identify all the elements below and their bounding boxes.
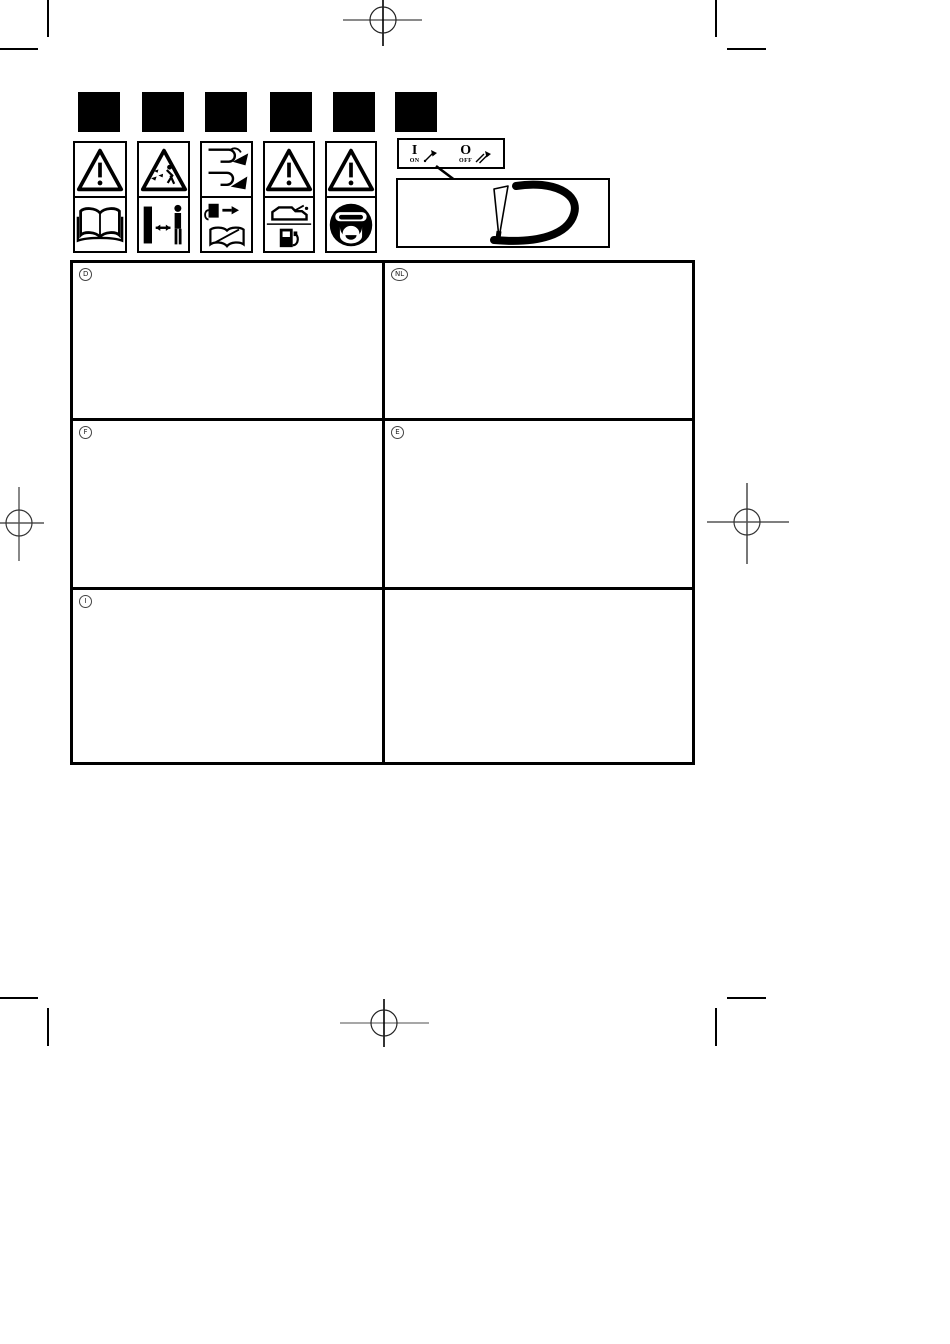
read-manual-book-icon [75, 196, 125, 251]
language-code-badge: I [79, 595, 92, 608]
warning-triangle-icon [265, 143, 313, 196]
crop-mark [0, 997, 38, 999]
handle-figure-box [396, 178, 610, 248]
keep-bystanders-away-icon [139, 196, 188, 251]
language-code-badge: F [79, 426, 92, 439]
loop-handle-with-throttle-lever [398, 180, 608, 246]
figure-number-square [205, 92, 247, 132]
warning-triangle-icon [327, 143, 375, 196]
crop-mark [47, 1008, 49, 1046]
crop-mark [715, 1008, 717, 1046]
registration-crosshair-icon [338, 0, 428, 50]
registration-crosshair-icon [703, 478, 795, 570]
language-code-badge: E [391, 426, 404, 439]
pictogram-box-5 [325, 141, 377, 253]
oil-and-fuel-icon [265, 196, 313, 251]
table-cell-dutch: NL [385, 263, 692, 421]
figure-number-square [270, 92, 312, 132]
thrown-objects-warning-icon [139, 143, 188, 196]
figure-number-square [78, 92, 120, 132]
figure-number-square [142, 92, 184, 132]
pictogram-box-1 [73, 141, 127, 253]
warning-triangle-icon [75, 143, 125, 196]
registration-crosshair-icon [0, 483, 52, 565]
language-section-table: D NL F E I [70, 260, 695, 765]
table-cell-empty [385, 590, 692, 762]
pictogram-box-2 [137, 141, 190, 253]
manual-page: I ON O OFF [0, 0, 950, 1344]
crop-mark [0, 48, 38, 50]
crop-mark [727, 997, 766, 999]
table-cell-spanish: E [385, 421, 692, 590]
table-cell-german: D [73, 263, 385, 421]
language-code-badge: NL [391, 268, 408, 281]
switch-on-label: ON [410, 158, 420, 164]
language-code-badge: D [79, 268, 92, 281]
registration-crosshair-icon [334, 998, 434, 1050]
switch-on-symbol: I [412, 144, 417, 158]
hand-cut-hazard-icon [202, 143, 251, 196]
switch-off-item: O OFF [459, 144, 492, 164]
table-cell-italian: I [73, 590, 385, 762]
disconnect-spark-plug-read-manual-icon [202, 196, 251, 251]
figure-number-square [333, 92, 375, 132]
figure-number-square [395, 92, 437, 132]
crop-mark [727, 48, 766, 50]
crop-mark [715, 0, 717, 37]
pictogram-box-4 [263, 141, 315, 253]
switch-off-symbol: O [460, 144, 471, 158]
table-cell-french: F [73, 421, 385, 590]
pictogram-box-3 [200, 141, 253, 253]
throttle-lever-on-icon [421, 148, 438, 164]
crop-mark [47, 0, 49, 37]
wear-face-protection-icon [327, 196, 375, 251]
switch-on-item: I ON [410, 144, 438, 164]
throttle-lever-off-icon [473, 148, 492, 164]
